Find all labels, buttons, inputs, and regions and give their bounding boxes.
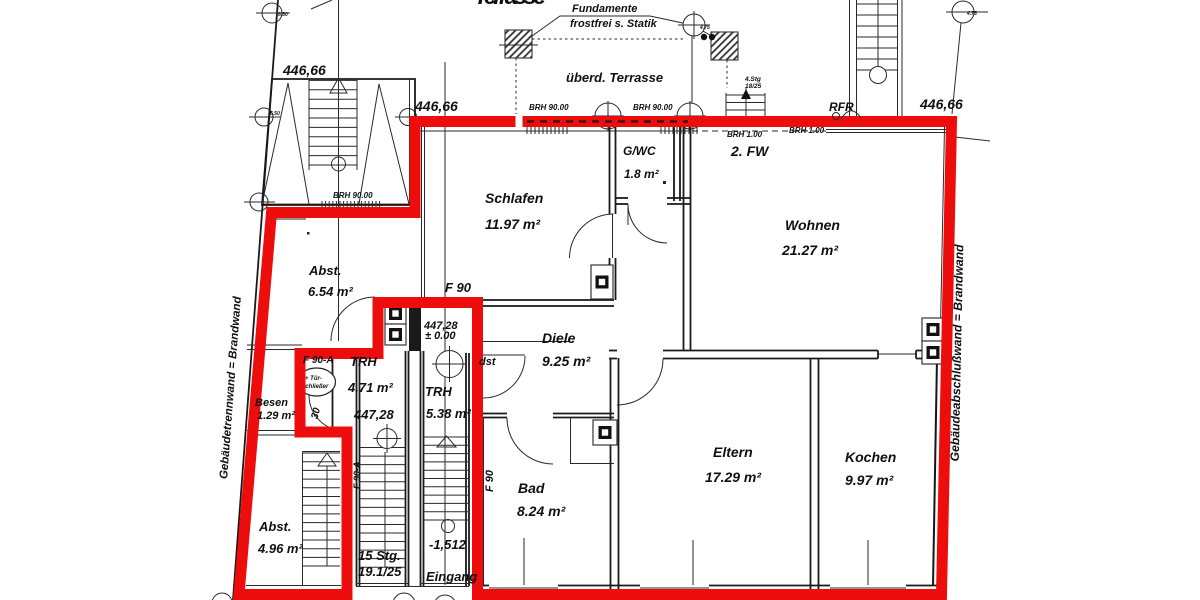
svg-text:17.29 m²: 17.29 m²: [705, 469, 761, 485]
svg-text:RFR: RFR: [829, 100, 854, 114]
svg-text:Abst.: Abst.: [258, 519, 292, 534]
svg-text:+ Tür-: + Tür-: [305, 376, 322, 382]
svg-text:dst: dst: [479, 356, 497, 368]
svg-text:Abst.: Abst.: [308, 263, 342, 278]
svg-text:F 90-A: F 90-A: [352, 461, 362, 489]
svg-text:BRH 90.00: BRH 90.00: [529, 103, 569, 112]
svg-text:9.25 m²: 9.25 m²: [542, 353, 591, 369]
svg-text:BRH 90.00: BRH 90.00: [333, 191, 373, 200]
svg-text:-1,512: -1,512: [429, 537, 467, 552]
svg-text:Diele: Diele: [542, 330, 576, 346]
svg-text:Kochen: Kochen: [845, 449, 896, 465]
svg-text:6.54 m²: 6.54 m²: [308, 284, 353, 299]
svg-text:BRH 1.00: BRH 1.00: [727, 130, 763, 139]
svg-text:frostfrei s. Statik: frostfrei s. Statik: [570, 18, 658, 30]
svg-text:8.24 m²: 8.24 m²: [517, 503, 566, 519]
svg-text:446,66: 446,66: [414, 98, 458, 114]
svg-text:Fundamente: Fundamente: [572, 3, 637, 15]
svg-text:TRH: TRH: [425, 384, 452, 399]
svg-text:446,66: 446,66: [919, 96, 963, 112]
svg-text:Terrasse: Terrasse: [474, 0, 546, 9]
svg-text:Besen: Besen: [255, 397, 288, 409]
svg-text:1.29 m²: 1.29 m²: [257, 410, 295, 422]
svg-text:447,28: 447,28: [353, 407, 395, 422]
svg-text:Eingang: Eingang: [426, 569, 477, 584]
svg-text:15 Stg.: 15 Stg.: [358, 548, 401, 563]
svg-text:2. FW: 2. FW: [730, 143, 770, 159]
svg-text:9.97 m²: 9.97 m²: [845, 472, 894, 488]
svg-text:4.71 m²: 4.71 m²: [347, 380, 393, 395]
svg-text:19.1/25: 19.1/25: [358, 564, 402, 579]
svg-text:Wohnen: Wohnen: [785, 217, 840, 233]
svg-text:18/25: 18/25: [745, 83, 762, 90]
svg-text:Schlafen: Schlafen: [485, 190, 543, 206]
svg-text:1.8 m²: 1.8 m²: [624, 167, 660, 181]
svg-text:± 0.00: ± 0.00: [425, 330, 456, 342]
svg-text:4.96 m²: 4.96 m²: [257, 541, 303, 556]
svg-text:F 90: F 90: [484, 469, 496, 492]
svg-text:4.75: 4.75: [699, 25, 710, 31]
svg-text:BRH 1.00: BRH 1.00: [789, 126, 825, 135]
svg-text:Bad: Bad: [518, 480, 545, 496]
svg-text:F 90-A: F 90-A: [303, 355, 334, 366]
svg-text:TRH: TRH: [350, 354, 377, 369]
svg-text:F 90: F 90: [445, 280, 472, 295]
svg-text:überd. Terrasse: überd. Terrasse: [566, 70, 663, 85]
svg-text:BRH 90.00: BRH 90.00: [633, 103, 673, 112]
svg-text:5.38 m²: 5.38 m²: [426, 406, 471, 421]
svg-text:4.75: 4.75: [966, 11, 977, 17]
svg-text:11.97 m²: 11.97 m²: [485, 216, 540, 232]
svg-text:21.27 m²: 21.27 m²: [781, 242, 838, 258]
svg-text:4.Stg: 4.Stg: [744, 76, 761, 83]
svg-text:schließer: schließer: [302, 384, 329, 390]
svg-text:G/WC: G/WC: [623, 144, 656, 158]
svg-text:6.50: 6.50: [278, 12, 288, 18]
svg-text:6.50: 6.50: [270, 111, 280, 117]
svg-text:Eltern: Eltern: [713, 444, 753, 460]
svg-text:446,66: 446,66: [282, 62, 326, 78]
